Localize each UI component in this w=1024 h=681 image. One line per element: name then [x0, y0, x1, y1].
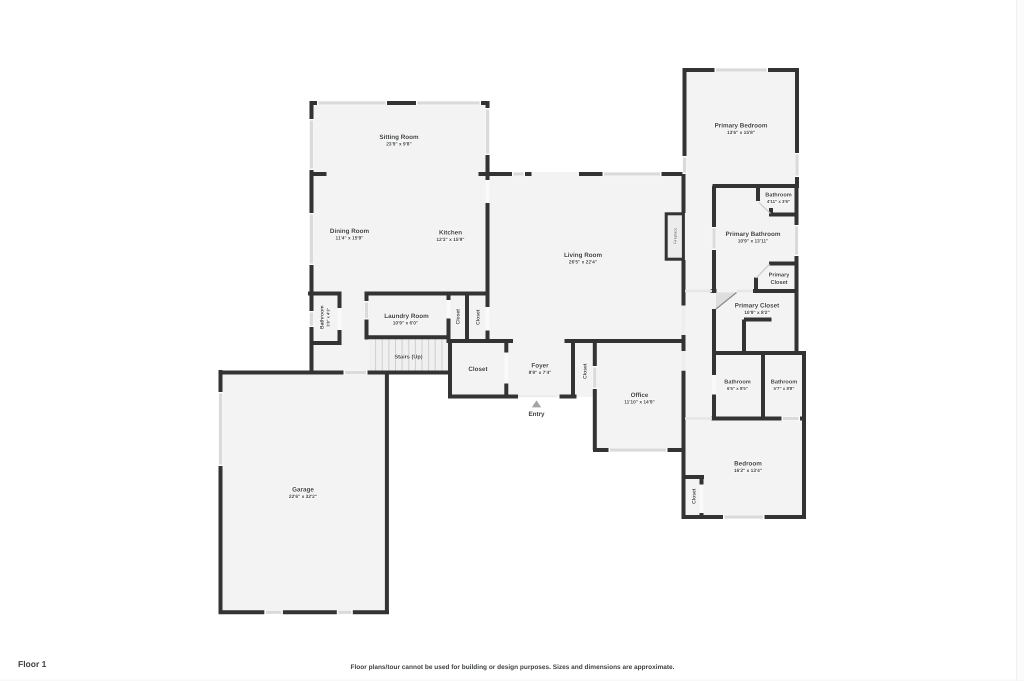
- svg-text:10'9" x 13'11": 10'9" x 13'11": [738, 239, 769, 245]
- svg-text:8'9" x 7'4": 8'9" x 7'4": [529, 370, 552, 376]
- svg-text:Living Room: Living Room: [564, 251, 602, 258]
- svg-text:Foyer: Foyer: [531, 362, 548, 369]
- svg-text:Stairs (Up): Stairs (Up): [394, 354, 422, 360]
- svg-text:Primary Bathroom: Primary Bathroom: [726, 230, 781, 237]
- svg-text:Bedroom: Bedroom: [734, 460, 762, 467]
- svg-text:Bathroom: Bathroom: [771, 379, 797, 385]
- svg-text:Fireplace: Fireplace: [673, 227, 678, 244]
- svg-text:Bathroom: Bathroom: [319, 305, 325, 329]
- svg-text:10'9" x 8'2": 10'9" x 8'2": [744, 310, 770, 316]
- svg-text:13'6" x 15'8": 13'6" x 15'8": [727, 130, 755, 136]
- svg-text:Closet: Closet: [468, 365, 488, 372]
- svg-text:3'8" x 4'3": 3'8" x 4'3": [326, 308, 331, 327]
- svg-text:Floor 1: Floor 1: [18, 659, 46, 669]
- svg-text:Bathroom: Bathroom: [765, 192, 791, 198]
- svg-text:16'2" x 13'4": 16'2" x 13'4": [734, 468, 762, 474]
- svg-text:Closet: Closet: [770, 280, 787, 286]
- svg-text:11'10" x 14'9": 11'10" x 14'9": [624, 400, 655, 406]
- svg-text:5'7" x 8'8": 5'7" x 8'8": [774, 386, 795, 391]
- svg-text:Closet: Closet: [455, 309, 461, 325]
- svg-text:Primary Closet: Primary Closet: [735, 302, 780, 309]
- svg-text:10'9" x 6'0": 10'9" x 6'0": [393, 321, 419, 327]
- svg-text:Closet: Closet: [691, 488, 697, 504]
- svg-text:26'5" x 22'4": 26'5" x 22'4": [569, 260, 597, 266]
- svg-text:4'11" x 3'6": 4'11" x 3'6": [767, 199, 790, 204]
- svg-text:Garage: Garage: [292, 486, 314, 493]
- svg-text:Kitchen: Kitchen: [439, 229, 462, 236]
- svg-text:Sitting Room: Sitting Room: [379, 133, 418, 140]
- svg-text:Entry: Entry: [528, 411, 544, 418]
- svg-text:Closet: Closet: [475, 309, 481, 325]
- svg-text:Laundry Room: Laundry Room: [384, 312, 428, 319]
- svg-text:Dining Room: Dining Room: [330, 227, 369, 234]
- svg-text:Closet: Closet: [582, 363, 588, 379]
- svg-text:Primary: Primary: [769, 272, 790, 278]
- svg-text:Primary Bedroom: Primary Bedroom: [715, 122, 768, 129]
- svg-text:23'9" x 9'8": 23'9" x 9'8": [386, 142, 412, 148]
- svg-text:11'4" x 15'9": 11'4" x 15'9": [336, 236, 364, 242]
- svg-text:Office: Office: [631, 391, 649, 398]
- svg-text:6'5" x 8'5": 6'5" x 8'5": [727, 386, 748, 391]
- svg-text:22'6" x 32'2": 22'6" x 32'2": [289, 494, 317, 500]
- svg-text:Floor plans/tour cannot be use: Floor plans/tour cannot be used for buil…: [351, 663, 675, 671]
- svg-text:12'3" x 15'9": 12'3" x 15'9": [436, 237, 464, 243]
- svg-text:Bathroom: Bathroom: [724, 379, 750, 385]
